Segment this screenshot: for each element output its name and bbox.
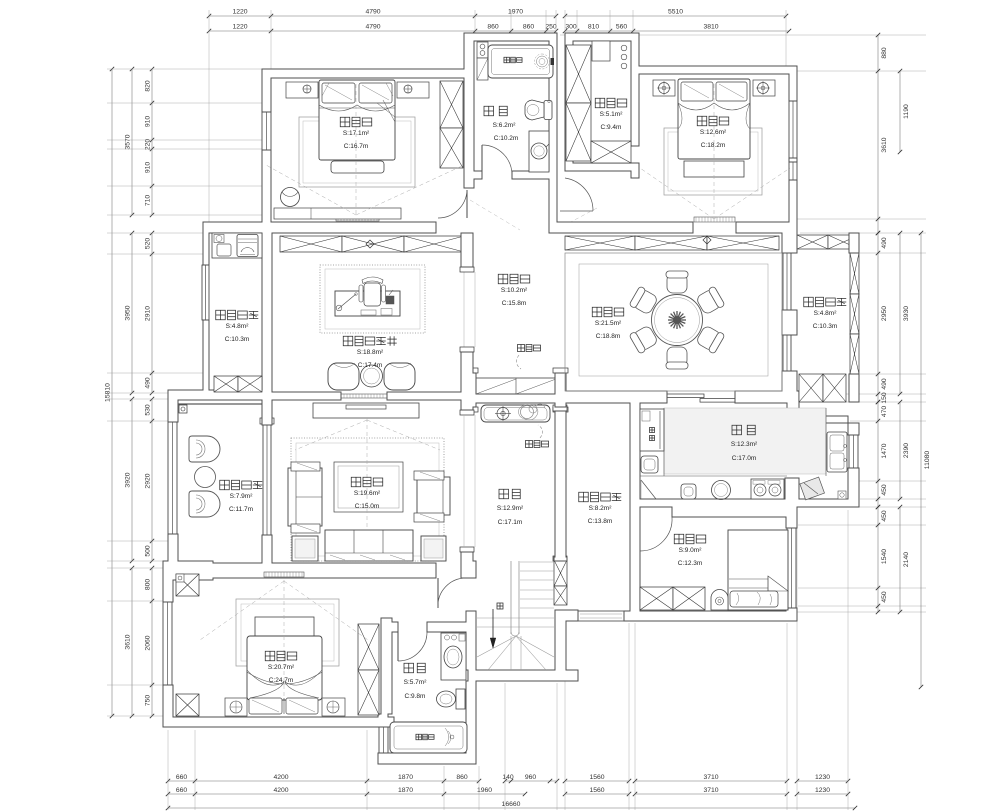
svg-text:490: 490 <box>881 237 888 249</box>
svg-text:450: 450 <box>881 484 888 496</box>
svg-text:1970: 1970 <box>508 9 523 16</box>
svg-text:490: 490 <box>145 377 152 389</box>
svg-text:C:24.7m: C:24.7m <box>269 677 294 684</box>
svg-text:C:10.3m: C:10.3m <box>813 323 838 330</box>
svg-text:450: 450 <box>881 591 888 603</box>
svg-text:C:17.4m: C:17.4m <box>358 362 383 369</box>
svg-text:3610: 3610 <box>881 137 888 152</box>
svg-text:800: 800 <box>145 579 152 591</box>
svg-text:2910: 2910 <box>145 306 152 321</box>
svg-text:660: 660 <box>176 774 188 781</box>
svg-text:S:20.7m²: S:20.7m² <box>268 664 295 671</box>
svg-text:1190: 1190 <box>903 104 910 119</box>
svg-text:S:6.2m²: S:6.2m² <box>493 122 517 129</box>
svg-text:S:4.8m²: S:4.8m² <box>226 323 250 330</box>
svg-text:710: 710 <box>145 195 152 207</box>
svg-text:810: 810 <box>588 24 600 31</box>
svg-text:S:8.2m²: S:8.2m² <box>589 505 613 512</box>
svg-text:3610: 3610 <box>125 634 132 649</box>
svg-text:1230: 1230 <box>815 787 830 794</box>
svg-text:S:4.8m²: S:4.8m² <box>814 310 838 317</box>
svg-text:1560: 1560 <box>589 787 604 794</box>
svg-text:C:10.3m: C:10.3m <box>225 336 250 343</box>
svg-text:470: 470 <box>881 406 888 418</box>
svg-text:910: 910 <box>145 162 152 174</box>
svg-text:860: 860 <box>523 24 535 31</box>
svg-text:4790: 4790 <box>365 9 380 16</box>
svg-text:S:21.5m²: S:21.5m² <box>595 320 622 327</box>
svg-text:520: 520 <box>145 238 152 250</box>
svg-text:S:5.7m²: S:5.7m² <box>404 679 428 686</box>
svg-text:1870: 1870 <box>398 787 413 794</box>
svg-text:1960: 1960 <box>477 787 492 794</box>
svg-text:3920: 3920 <box>125 472 132 487</box>
svg-text:560: 560 <box>616 24 628 31</box>
svg-text:S:9.0m²: S:9.0m² <box>679 547 703 554</box>
svg-text:750: 750 <box>145 695 152 707</box>
svg-text:1220: 1220 <box>232 9 247 16</box>
svg-text:1870: 1870 <box>398 774 413 781</box>
svg-text:2950: 2950 <box>881 306 888 321</box>
svg-text:880: 880 <box>881 47 888 59</box>
svg-text:C:18.2m: C:18.2m <box>701 142 726 149</box>
svg-text:1230: 1230 <box>815 774 830 781</box>
svg-text:C:17.1m: C:17.1m <box>498 519 523 526</box>
svg-text:C:15.0m: C:15.0m <box>355 503 380 510</box>
svg-text:S:7.9m²: S:7.9m² <box>230 493 254 500</box>
svg-text:220: 220 <box>145 139 152 151</box>
svg-text:C:10.2m: C:10.2m <box>494 135 519 142</box>
svg-text:660: 660 <box>176 787 188 794</box>
svg-text:3570: 3570 <box>125 134 132 149</box>
svg-text:1560: 1560 <box>589 774 604 781</box>
svg-text:300: 300 <box>565 24 577 31</box>
svg-text:2390: 2390 <box>903 443 910 458</box>
svg-text:C:9.8m: C:9.8m <box>405 693 426 700</box>
svg-text:3810: 3810 <box>703 24 718 31</box>
svg-text:1220: 1220 <box>232 24 247 31</box>
svg-text:5510: 5510 <box>668 9 683 16</box>
svg-text:4200: 4200 <box>273 787 288 794</box>
svg-text:16660: 16660 <box>502 801 521 808</box>
svg-text:2140: 2140 <box>903 552 910 567</box>
svg-text:3710: 3710 <box>703 774 718 781</box>
svg-text:860: 860 <box>456 774 468 781</box>
svg-text:S:12.3m²: S:12.3m² <box>731 441 758 448</box>
svg-text:1540: 1540 <box>881 549 888 564</box>
svg-text:S:5.1m²: S:5.1m² <box>600 111 624 118</box>
svg-text:960: 960 <box>525 774 537 781</box>
svg-text:4790: 4790 <box>365 24 380 31</box>
svg-text:3710: 3710 <box>703 787 718 794</box>
svg-text:S:12.6m²: S:12.6m² <box>700 129 727 136</box>
svg-text:4200: 4200 <box>273 774 288 781</box>
svg-text:2920: 2920 <box>145 473 152 488</box>
svg-text:820: 820 <box>145 80 152 92</box>
svg-text:C:18.8m: C:18.8m <box>596 333 621 340</box>
svg-text:490: 490 <box>881 378 888 390</box>
svg-text:S:17.1m²: S:17.1m² <box>343 130 370 137</box>
svg-text:S:10.2m²: S:10.2m² <box>501 287 528 294</box>
svg-text:S:19.6m²: S:19.6m² <box>354 490 381 497</box>
svg-text:C:17.0m: C:17.0m <box>732 455 757 462</box>
svg-text:S:12.9m²: S:12.9m² <box>497 505 524 512</box>
svg-text:3950: 3950 <box>125 305 132 320</box>
svg-text:150: 150 <box>881 392 888 404</box>
svg-text:C:13.8m: C:13.8m <box>588 518 613 525</box>
svg-text:C:12.3m: C:12.3m <box>678 560 703 567</box>
svg-text:910: 910 <box>145 116 152 128</box>
svg-text:500: 500 <box>145 545 152 557</box>
svg-text:250: 250 <box>545 24 557 31</box>
svg-text:860: 860 <box>487 24 499 31</box>
svg-text:C:15.8m: C:15.8m <box>502 300 527 307</box>
svg-text:530: 530 <box>145 404 152 416</box>
svg-text:1470: 1470 <box>881 443 888 458</box>
svg-text:C:11.7m: C:11.7m <box>229 506 253 513</box>
svg-text:11080: 11080 <box>924 451 931 470</box>
svg-text:C:16.7m: C:16.7m <box>344 143 369 150</box>
svg-text:3930: 3930 <box>903 306 910 321</box>
svg-text:2060: 2060 <box>145 635 152 650</box>
svg-text:S:18.8m²: S:18.8m² <box>357 349 384 356</box>
svg-text:C:9.4m: C:9.4m <box>601 124 622 131</box>
svg-text:140: 140 <box>502 774 514 781</box>
svg-text:450: 450 <box>881 510 888 522</box>
